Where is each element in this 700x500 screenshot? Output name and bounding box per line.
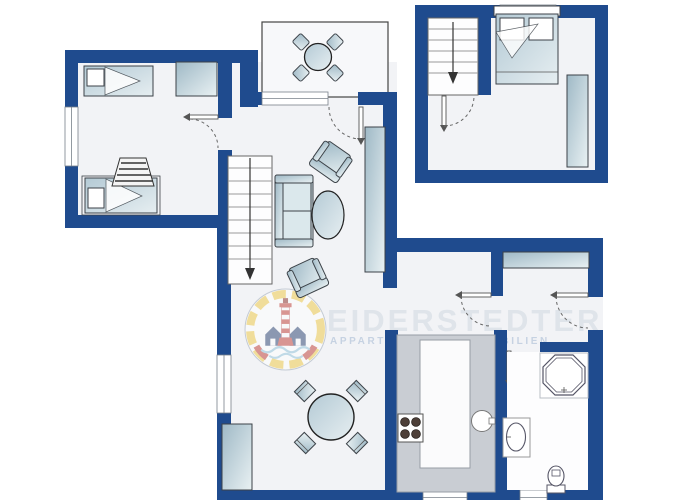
single-bed-bottom-icon xyxy=(82,158,160,215)
stove-icon xyxy=(398,414,423,442)
upper-wardrobe-icon xyxy=(567,75,588,167)
bedroom-door xyxy=(183,113,218,148)
balcony-door xyxy=(329,107,365,145)
hall-wardrobe-icon xyxy=(503,252,589,268)
sofa-icon xyxy=(275,175,313,247)
upper-stairs-icon xyxy=(428,18,478,95)
double-bed-icon xyxy=(494,6,560,84)
upper-stairs-door xyxy=(440,96,474,132)
bunk-ladder-icon xyxy=(112,158,154,186)
balcony-french-window xyxy=(262,92,328,105)
entrance-door xyxy=(550,291,588,328)
single-bed-top-icon xyxy=(84,66,153,96)
plan-layer xyxy=(0,0,700,500)
living-wardrobe-icon xyxy=(365,127,385,272)
balcony-dining-set-icon xyxy=(292,33,344,82)
bedroom-window xyxy=(65,107,78,166)
bathroom-window xyxy=(520,490,547,500)
balcony-table-icon xyxy=(305,44,332,71)
dining-set-icon xyxy=(294,380,367,453)
hall-door xyxy=(455,291,491,326)
dining-cabinet-icon xyxy=(222,424,252,490)
shower-icon xyxy=(540,353,588,398)
armchair-bottom-icon xyxy=(286,256,330,298)
dining-window xyxy=(217,355,231,413)
dining-table-icon xyxy=(308,394,354,440)
washbasin-icon xyxy=(503,418,530,457)
main-stairs-icon xyxy=(228,156,272,284)
floorplan-canvas: EIDERSTEDTER APPARTEMENTS & IMMOBILIEN xyxy=(0,0,700,500)
coffee-table-icon xyxy=(312,191,344,239)
toilet-icon xyxy=(547,466,565,493)
armchair-top-icon xyxy=(308,139,354,184)
dresser-icon xyxy=(176,62,217,96)
